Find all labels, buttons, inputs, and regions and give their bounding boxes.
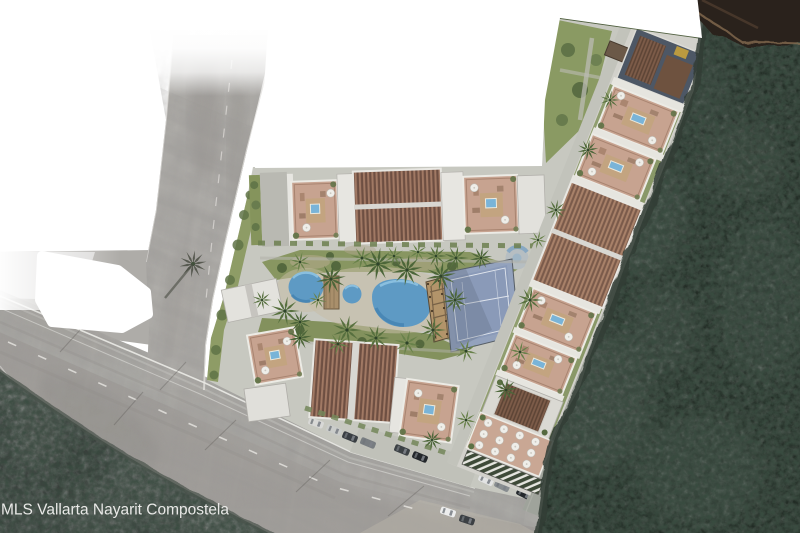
svg-text:MLS Vallarta Nayarit Compostel: MLS Vallarta Nayarit Compostela — [1, 502, 229, 519]
